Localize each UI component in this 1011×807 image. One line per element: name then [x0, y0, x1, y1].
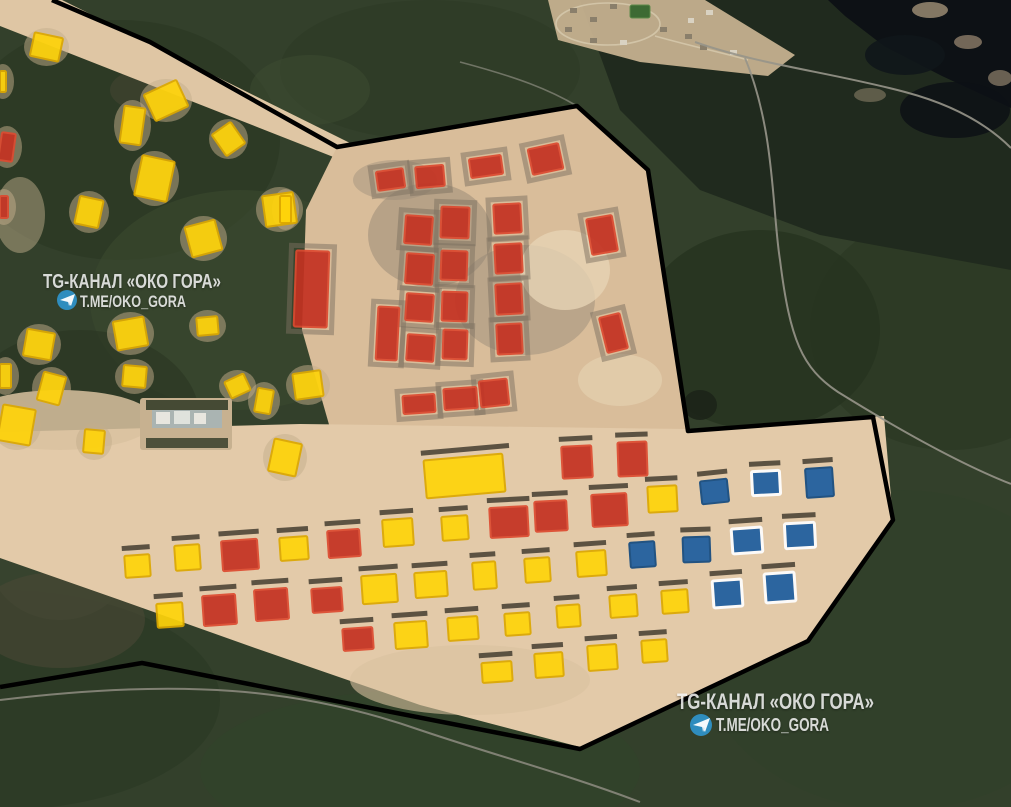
building-marker-red — [402, 394, 435, 414]
building-marker-red — [221, 539, 259, 571]
building-marker-yellow — [30, 32, 63, 62]
satellite-map: TG-КАНАЛ «ОКО ГОРА» T.ME/OKO_GORA TG-КАН… — [0, 0, 1011, 807]
building-marker-blueW — [731, 527, 763, 554]
building-marker-red — [294, 250, 330, 327]
building-marker-yellow — [174, 544, 201, 571]
facility — [140, 398, 232, 450]
building-marker-blue — [805, 467, 834, 498]
building-marker-red — [376, 168, 405, 191]
building-marker-red — [534, 500, 568, 532]
building-marker-red — [561, 445, 593, 479]
telegram-icon — [690, 714, 712, 736]
building-marker-yellow — [504, 612, 530, 636]
building-marker-yellow — [196, 316, 218, 336]
satellite-annotation-image: TG-КАНАЛ «ОКО ГОРА» T.ME/OKO_GORA TG-КАН… — [0, 0, 1011, 807]
telegram-icon — [57, 290, 77, 310]
building-marker-red — [591, 493, 628, 527]
building-marker-yellow — [0, 71, 6, 92]
building-marker-red — [202, 594, 237, 626]
building-marker-yellow — [83, 429, 105, 454]
building-marker-red — [489, 506, 529, 538]
building-marker-red — [586, 215, 618, 255]
building-marker-red — [469, 155, 503, 178]
building-marker-red — [342, 627, 373, 651]
building-marker-yellow — [23, 329, 55, 360]
watermark-handle: T.ME/OKO_GORA — [80, 293, 186, 311]
building-marker-yellow — [124, 554, 150, 578]
building-marker-yellow — [647, 485, 677, 512]
building-marker-red — [442, 292, 468, 322]
berm-dash — [680, 526, 710, 532]
building-marker-yellow — [74, 196, 103, 228]
building-marker-red — [443, 387, 477, 410]
building-marker-red — [405, 253, 434, 285]
building-marker-yellow — [534, 652, 564, 678]
building-marker-yellow — [414, 571, 448, 598]
building-marker-yellow — [481, 661, 512, 683]
building-marker-yellow — [441, 515, 469, 541]
building-marker-red — [528, 143, 564, 175]
building-marker-yellow — [447, 616, 479, 641]
building-marker-red — [404, 215, 433, 245]
building-marker-blueW — [764, 572, 796, 603]
building-marker-blueW — [784, 522, 815, 549]
building-marker-yellow — [254, 388, 274, 414]
building-marker-red — [0, 196, 8, 218]
building-marker-yellow — [120, 106, 146, 146]
building-marker-blue — [629, 541, 656, 568]
building-marker-red — [405, 293, 434, 322]
watermark-title: TG-КАНАЛ «ОКО ГОРА» — [43, 271, 221, 293]
building-marker-blue — [683, 537, 711, 563]
building-marker-red — [254, 588, 289, 621]
building-marker-yellow — [185, 220, 223, 258]
building-marker-yellow — [394, 621, 428, 649]
watermark-handle: T.ME/OKO_GORA — [716, 715, 829, 735]
building-marker-red — [495, 283, 523, 314]
building-marker-red — [617, 442, 647, 477]
building-marker-yellow — [609, 594, 637, 618]
building-marker-yellow — [472, 561, 497, 590]
building-marker-yellow — [280, 196, 291, 223]
building-marker-blueW — [712, 579, 743, 608]
building-marker-yellow — [268, 438, 302, 476]
building-marker-yellow — [661, 589, 689, 614]
building-marker-red — [406, 334, 435, 362]
building-marker-blue — [700, 479, 729, 505]
building-marker-yellow — [587, 644, 618, 671]
building-marker-red — [479, 379, 510, 408]
building-marker-yellow — [0, 364, 11, 388]
building-marker-yellow — [0, 404, 36, 445]
building-marker-yellow — [556, 604, 580, 628]
building-marker-yellow — [576, 550, 607, 577]
building-marker-yellow — [524, 557, 551, 583]
building-marker-red — [493, 203, 521, 233]
building-marker-red — [0, 132, 16, 162]
building-marker-yellow — [292, 370, 323, 400]
building-marker-yellow — [361, 574, 398, 604]
building-marker-yellow — [423, 454, 505, 499]
building-marker-yellow — [134, 155, 175, 202]
watermark-title: TG-КАНАЛ «ОКО ГОРА» — [677, 689, 874, 714]
building-marker-red — [441, 251, 468, 281]
building-marker-red — [496, 323, 523, 354]
building-marker-red — [415, 165, 445, 188]
building-marker-yellow — [122, 365, 147, 388]
building-marker-red — [443, 330, 468, 360]
building-marker-yellow — [641, 639, 667, 663]
building-marker-yellow — [113, 317, 149, 351]
building-marker-red — [311, 587, 343, 613]
building-marker-red — [327, 529, 361, 558]
building-marker-yellow — [279, 536, 309, 561]
building-marker-red — [376, 306, 400, 360]
building-marker-yellow — [382, 518, 414, 547]
building-marker-red — [494, 243, 522, 273]
building-marker-yellow — [156, 602, 184, 628]
building-marker-blueW — [751, 470, 780, 495]
building-marker-red — [440, 207, 469, 239]
